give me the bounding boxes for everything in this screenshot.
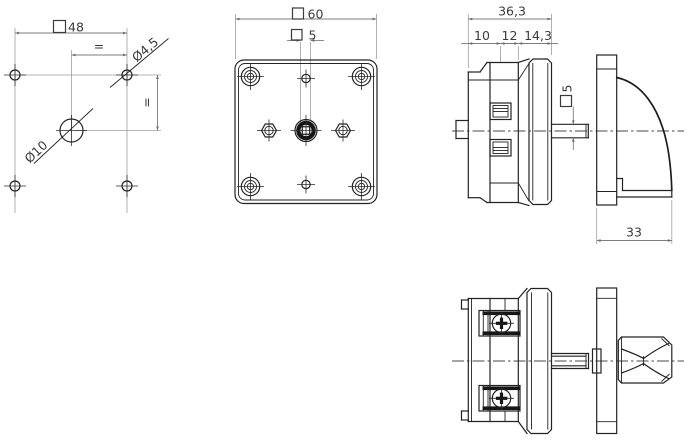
dim-label: 5 <box>560 85 575 93</box>
hole <box>4 64 26 86</box>
pilot-hole-top <box>297 70 315 88</box>
dim-label: 48 <box>68 20 84 35</box>
square-symbol <box>293 8 304 19</box>
dim-label: 33 <box>626 225 642 240</box>
dim-label: = <box>139 97 154 107</box>
mounting-lug <box>462 300 469 309</box>
handle-faceplate-side <box>597 55 617 205</box>
dimension-depth-chain: 10 12 14,3 <box>461 28 558 62</box>
mounting-lug <box>456 121 468 139</box>
terminal-screw-lower <box>479 386 520 412</box>
dim-label: 14,3 <box>524 28 552 43</box>
dimension-shaft-square: 5 <box>560 85 575 150</box>
dimension-square-48: 48 <box>15 20 127 35</box>
dim-label: 10 <box>474 28 490 43</box>
switch-body-side <box>456 59 529 206</box>
terminal-screw-upper <box>479 311 520 337</box>
pilot-hole-bottom <box>297 176 315 194</box>
dim-label: 36,3 <box>498 4 526 19</box>
technical-drawing-page: 48 = = <box>0 0 691 444</box>
dimension-square-5: 5 <box>287 28 324 43</box>
view-top <box>452 288 684 434</box>
mounting-flange-side <box>529 59 552 205</box>
square-symbol <box>561 96 572 107</box>
dim-label: 5 <box>309 28 317 43</box>
center-hole <box>56 115 87 146</box>
terminal-upper <box>490 103 511 120</box>
dim-label: Ø4,5 <box>129 34 161 65</box>
dimension-equal-vertical: = <box>139 75 158 131</box>
view-drilling-plan: 48 = = <box>4 20 169 214</box>
square-shaft-hub <box>291 115 322 146</box>
hex-nut-left <box>257 120 281 142</box>
screw <box>237 173 264 200</box>
dim-label: = <box>94 39 104 54</box>
view-side: 36,3 10 12 14,3 <box>452 4 684 245</box>
leader-center-hole-diameter: Ø10 <box>21 109 93 166</box>
hex-nut-right <box>331 120 355 142</box>
leader-hole-diameter: Ø4,5 <box>110 34 169 87</box>
dimension-square-60: 60 <box>236 7 377 22</box>
mounting-lug <box>462 411 469 420</box>
screw <box>348 63 375 90</box>
dim-label: 60 <box>308 7 324 22</box>
handle-knob-top <box>618 337 672 383</box>
dim-label: 12 <box>502 28 518 43</box>
square-symbol <box>292 30 303 41</box>
technical-drawing-canvas: 48 = = <box>0 0 691 444</box>
screw <box>237 63 264 90</box>
handle-knob-side <box>617 78 672 198</box>
view-front: 60 5 <box>235 7 377 204</box>
square-symbol <box>54 21 66 33</box>
terminal-lower <box>490 140 511 157</box>
screw <box>348 173 375 200</box>
dim-label: Ø10 <box>21 137 50 166</box>
hole <box>4 175 26 197</box>
dimension-equal-horizontal: = <box>72 39 128 56</box>
dimension-handle-depth: 33 <box>597 200 672 244</box>
hole <box>116 175 138 197</box>
